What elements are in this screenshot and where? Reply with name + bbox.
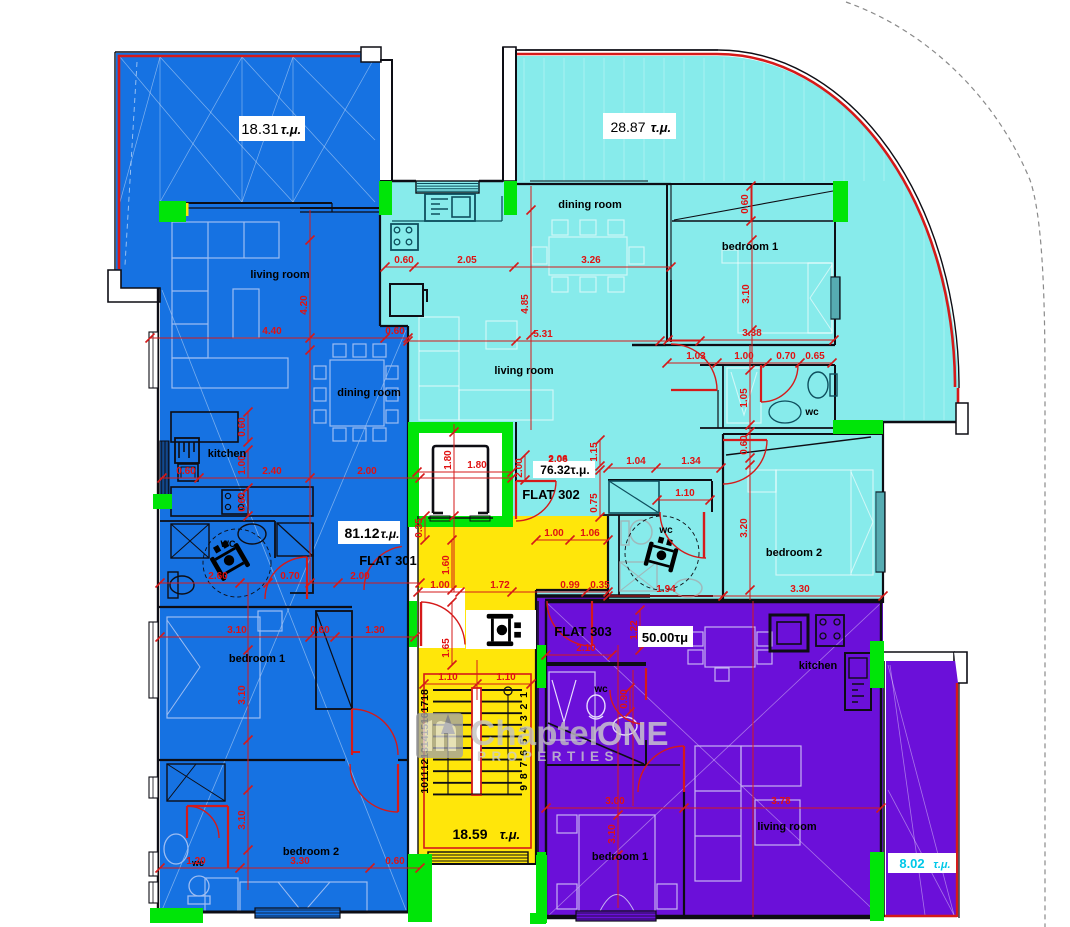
svg-text:4.85: 4.85 (520, 294, 531, 314)
svg-text:bedroom 2: bedroom 2 (283, 846, 339, 858)
svg-text:1.00: 1.00 (430, 580, 450, 591)
svg-text:0.70: 0.70 (280, 571, 300, 582)
svg-text:τ.μ.: τ.μ. (281, 122, 301, 137)
svg-text:1.00: 1.00 (544, 528, 564, 539)
svg-text:2.05: 2.05 (457, 255, 477, 266)
svg-text:4.20: 4.20 (299, 295, 310, 315)
svg-text:wc: wc (804, 407, 819, 418)
svg-text:81.12: 81.12 (344, 525, 379, 541)
svg-text:1.10: 1.10 (675, 488, 695, 499)
svg-text:17: 17 (419, 701, 431, 713)
svg-text:living room: living room (494, 365, 554, 377)
svg-text:0.60: 0.60 (740, 194, 751, 214)
svg-text:1: 1 (518, 692, 530, 698)
svg-text:11: 11 (419, 770, 431, 781)
svg-text:1.72: 1.72 (490, 580, 510, 591)
svg-text:9: 9 (518, 785, 530, 791)
svg-text:2: 2 (518, 704, 530, 710)
svg-text:0.99: 0.99 (560, 580, 580, 591)
svg-text:PROPERTIES: PROPERTIES (477, 749, 619, 764)
svg-text:τ.μ.: τ.μ. (933, 859, 950, 871)
svg-text:dining room: dining room (337, 387, 401, 399)
svg-text:WC: WC (221, 539, 236, 549)
svg-text:1.94: 1.94 (656, 584, 676, 595)
svg-text:bedroom 2: bedroom 2 (766, 547, 822, 559)
svg-text:12: 12 (419, 759, 431, 771)
svg-text:3.78: 3.78 (771, 796, 791, 807)
svg-text:1.80: 1.80 (467, 460, 487, 471)
svg-text:FLAT 302: FLAT 302 (522, 487, 580, 502)
svg-text:18.59: 18.59 (452, 826, 487, 842)
svg-text:bedroom 1: bedroom 1 (722, 241, 778, 253)
svg-text:wc: wc (658, 525, 673, 536)
svg-text:ONE: ONE (597, 715, 669, 752)
svg-text:0.60: 0.60 (237, 417, 248, 437)
svg-text:3.30: 3.30 (790, 584, 810, 595)
svg-text:kitchen: kitchen (799, 660, 838, 672)
svg-text:2.00: 2.00 (514, 458, 525, 478)
svg-text:2.06: 2.06 (548, 454, 568, 465)
svg-text:bedroom 1: bedroom 1 (229, 653, 285, 665)
svg-text:0.60: 0.60 (739, 435, 750, 455)
svg-text:1.04: 1.04 (626, 456, 646, 467)
svg-text:18: 18 (419, 689, 431, 701)
svg-text:2.10: 2.10 (576, 643, 596, 654)
svg-text:2.60: 2.60 (208, 571, 228, 582)
svg-text:τ.μ.: τ.μ. (381, 527, 400, 541)
svg-text:3.10: 3.10 (607, 824, 618, 844)
svg-text:8: 8 (518, 773, 530, 779)
svg-text:2.00: 2.00 (357, 466, 377, 477)
svg-text:76.32τ.μ.: 76.32τ.μ. (540, 463, 589, 477)
svg-text:Chapter: Chapter (470, 714, 603, 753)
svg-text:3.26: 3.26 (581, 255, 601, 266)
svg-text:3.10: 3.10 (227, 625, 247, 636)
svg-text:living room: living room (757, 821, 817, 833)
svg-text:10: 10 (419, 782, 431, 794)
svg-text:1.06: 1.06 (580, 528, 600, 539)
svg-text:0.60: 0.60 (176, 466, 196, 477)
svg-text:2.40: 2.40 (262, 466, 282, 477)
svg-text:8.02: 8.02 (899, 856, 924, 871)
svg-text:3.10: 3.10 (741, 284, 752, 304)
svg-text:0.70: 0.70 (776, 351, 796, 362)
svg-text:0.60: 0.60 (385, 326, 405, 337)
svg-text:τ.μ.: τ.μ. (500, 827, 520, 842)
svg-text:0.35: 0.35 (590, 580, 610, 591)
svg-text:FLAT 303: FLAT 303 (554, 624, 612, 639)
svg-text:0.35: 0.35 (414, 518, 425, 538)
svg-text:0.90: 0.90 (619, 689, 630, 709)
svg-text:3.20: 3.20 (739, 518, 750, 538)
svg-text:3.00: 3.00 (605, 796, 625, 807)
svg-text:0.75: 0.75 (589, 493, 600, 513)
svg-text:1.34: 1.34 (681, 456, 701, 467)
svg-text:living room: living room (250, 269, 310, 281)
svg-text:1.15: 1.15 (589, 442, 600, 462)
svg-text:1.20: 1.20 (186, 856, 206, 867)
svg-text:50.00τμ: 50.00τμ (642, 630, 688, 645)
svg-text:0.60: 0.60 (310, 625, 330, 636)
svg-text:0.60: 0.60 (394, 255, 414, 266)
svg-text:1.30: 1.30 (365, 625, 385, 636)
svg-text:dining room: dining room (558, 199, 622, 211)
svg-text:FLAT 301: FLAT 301 (359, 553, 417, 568)
svg-text:1.00: 1.00 (734, 351, 754, 362)
svg-text:1.05: 1.05 (739, 388, 750, 408)
svg-text:τ.μ.: τ.μ. (651, 120, 671, 135)
svg-text:3.10: 3.10 (237, 810, 248, 830)
svg-text:4.40: 4.40 (262, 326, 282, 337)
svg-text:kitchen: kitchen (208, 448, 247, 460)
svg-text:1.03: 1.03 (686, 351, 706, 362)
svg-text:1.10: 1.10 (496, 672, 516, 683)
svg-text:0.60: 0.60 (385, 856, 405, 867)
svg-text:1.80: 1.80 (443, 450, 454, 470)
svg-text:wc: wc (593, 684, 608, 695)
svg-text:1.60: 1.60 (441, 555, 452, 575)
svg-text:1.65: 1.65 (441, 638, 452, 658)
svg-text:18.31: 18.31 (241, 121, 279, 138)
svg-text:bedroom 1: bedroom 1 (592, 851, 648, 863)
svg-text:2.00: 2.00 (350, 571, 370, 582)
svg-text:5.31: 5.31 (533, 329, 553, 340)
svg-text:1.10: 1.10 (438, 672, 458, 683)
svg-text:3.10: 3.10 (237, 685, 248, 705)
svg-text:28.87: 28.87 (610, 119, 645, 135)
svg-text:0.60: 0.60 (237, 492, 248, 512)
svg-text:0.65: 0.65 (805, 351, 825, 362)
